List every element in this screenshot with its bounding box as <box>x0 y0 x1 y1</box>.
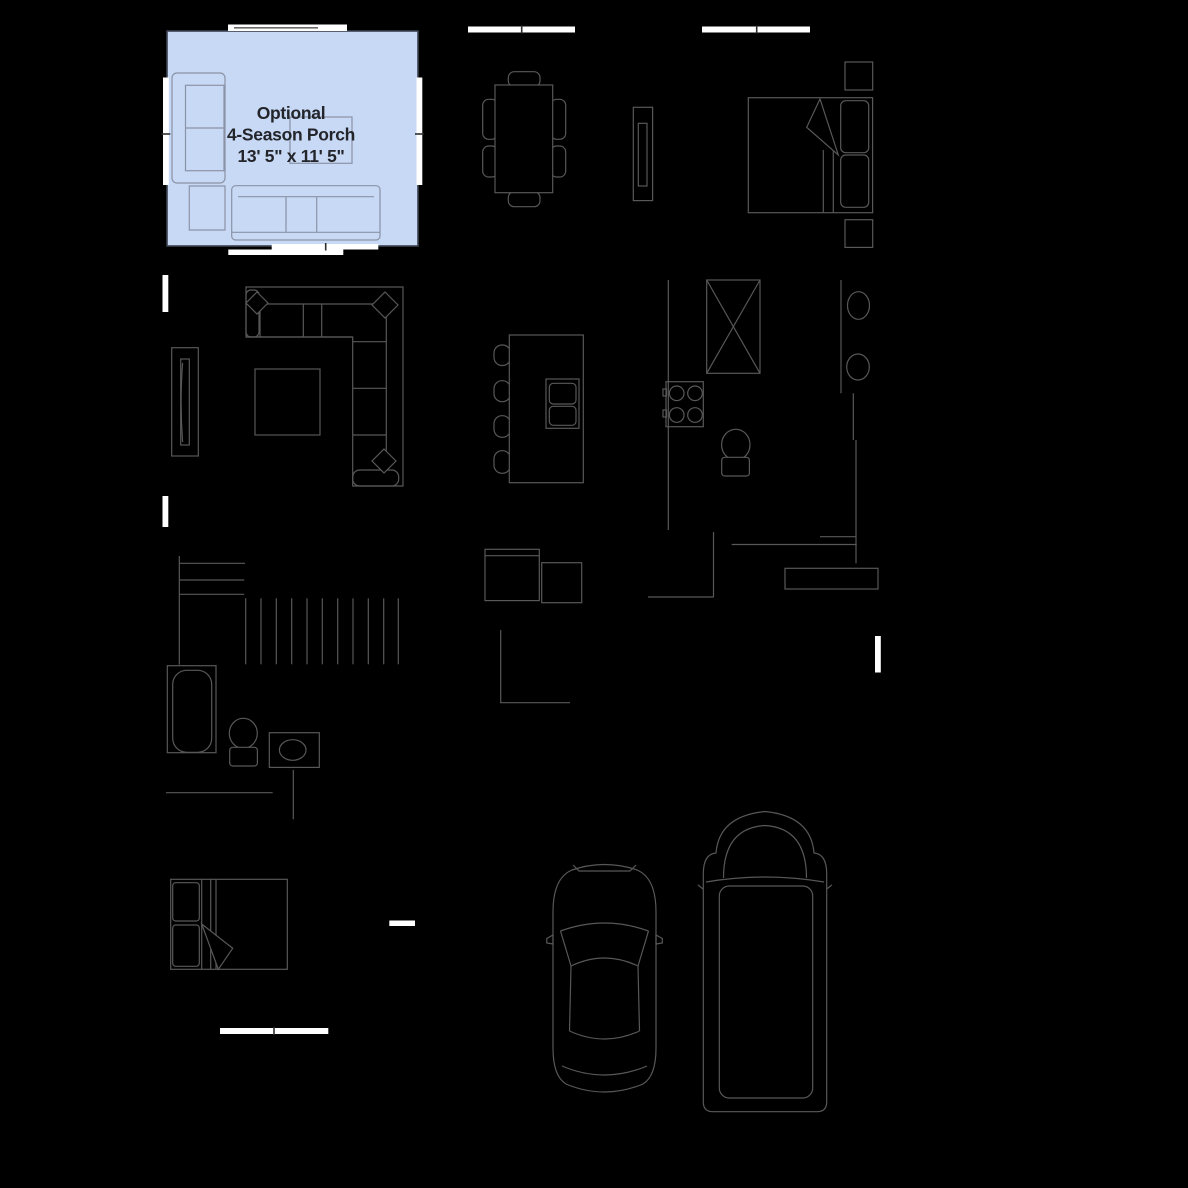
bedroom2-window-marker <box>389 921 415 927</box>
porch-label-line1: Optional <box>257 103 326 123</box>
optional-porch-room: Optional 4-Season Porch 13' 5" x 11' 5" <box>167 31 418 246</box>
bath2-area <box>847 292 870 380</box>
living-window-bottom-marker <box>163 496 169 527</box>
tv-console-icon <box>172 348 199 456</box>
wall-line <box>501 630 570 703</box>
dining-chair-icon <box>508 192 540 207</box>
nightstand-icon <box>845 62 873 90</box>
refrigerator-icon <box>707 280 760 373</box>
dining-window-marker <box>468 26 575 34</box>
sectional-sofa-icon <box>246 287 403 486</box>
toilet-icon <box>722 429 750 476</box>
double-bed-icon <box>748 98 872 213</box>
bed-icon <box>171 879 288 969</box>
lower-left-window-marker <box>220 1027 328 1035</box>
bar-stool-icon <box>494 451 511 474</box>
cooktop-icon <box>663 382 703 427</box>
kitchen-area <box>494 280 760 483</box>
washer-icon <box>485 549 539 600</box>
mudroom-bench-icon <box>785 568 878 589</box>
bathtub-icon <box>167 666 216 753</box>
vanity-sink-icon <box>269 733 319 768</box>
porch-label-line2: 4-Season Porch <box>227 125 355 145</box>
throw-pillow-icon <box>372 292 398 318</box>
living-area <box>172 287 403 486</box>
floor-plan-page: Optional 4-Season Porch 13' 5" x 11' 5" <box>0 0 1188 1188</box>
dryer-icon <box>542 563 582 603</box>
right-wall-window-marker <box>875 636 881 673</box>
coffee-table-icon <box>255 369 320 435</box>
porch-label-line3: 13' 5" x 11' 5" <box>237 146 344 166</box>
laundry-area <box>485 549 582 602</box>
sink-basin-icon <box>847 354 870 380</box>
garage-area <box>547 568 878 1111</box>
toilet-icon <box>229 718 257 766</box>
bedroom2-area <box>171 879 288 969</box>
living-window-top-marker <box>163 275 169 312</box>
dining-table-icon <box>495 85 553 193</box>
bath1-area <box>167 666 319 768</box>
porch-top-door-marker <box>228 25 347 32</box>
floor-plan-canvas: Optional 4-Season Porch 13' 5" x 11' 5" <box>0 0 1188 1188</box>
throw-pillow-icon <box>246 292 268 314</box>
bedroom1-window-marker <box>702 26 810 34</box>
bedroom1-area <box>748 62 872 247</box>
sideboard-icon <box>633 107 652 200</box>
bar-stool-icon <box>494 381 511 402</box>
car-icon <box>547 865 663 1093</box>
sink-basin-icon <box>848 292 870 320</box>
nightstand-icon <box>845 220 873 248</box>
bar-stool-icon <box>494 345 511 366</box>
dining-area <box>483 72 653 207</box>
powder-room-area <box>722 429 750 476</box>
pickup-truck-icon <box>698 812 832 1112</box>
bar-stool-icon <box>494 416 511 438</box>
stairs-icon <box>179 556 398 665</box>
